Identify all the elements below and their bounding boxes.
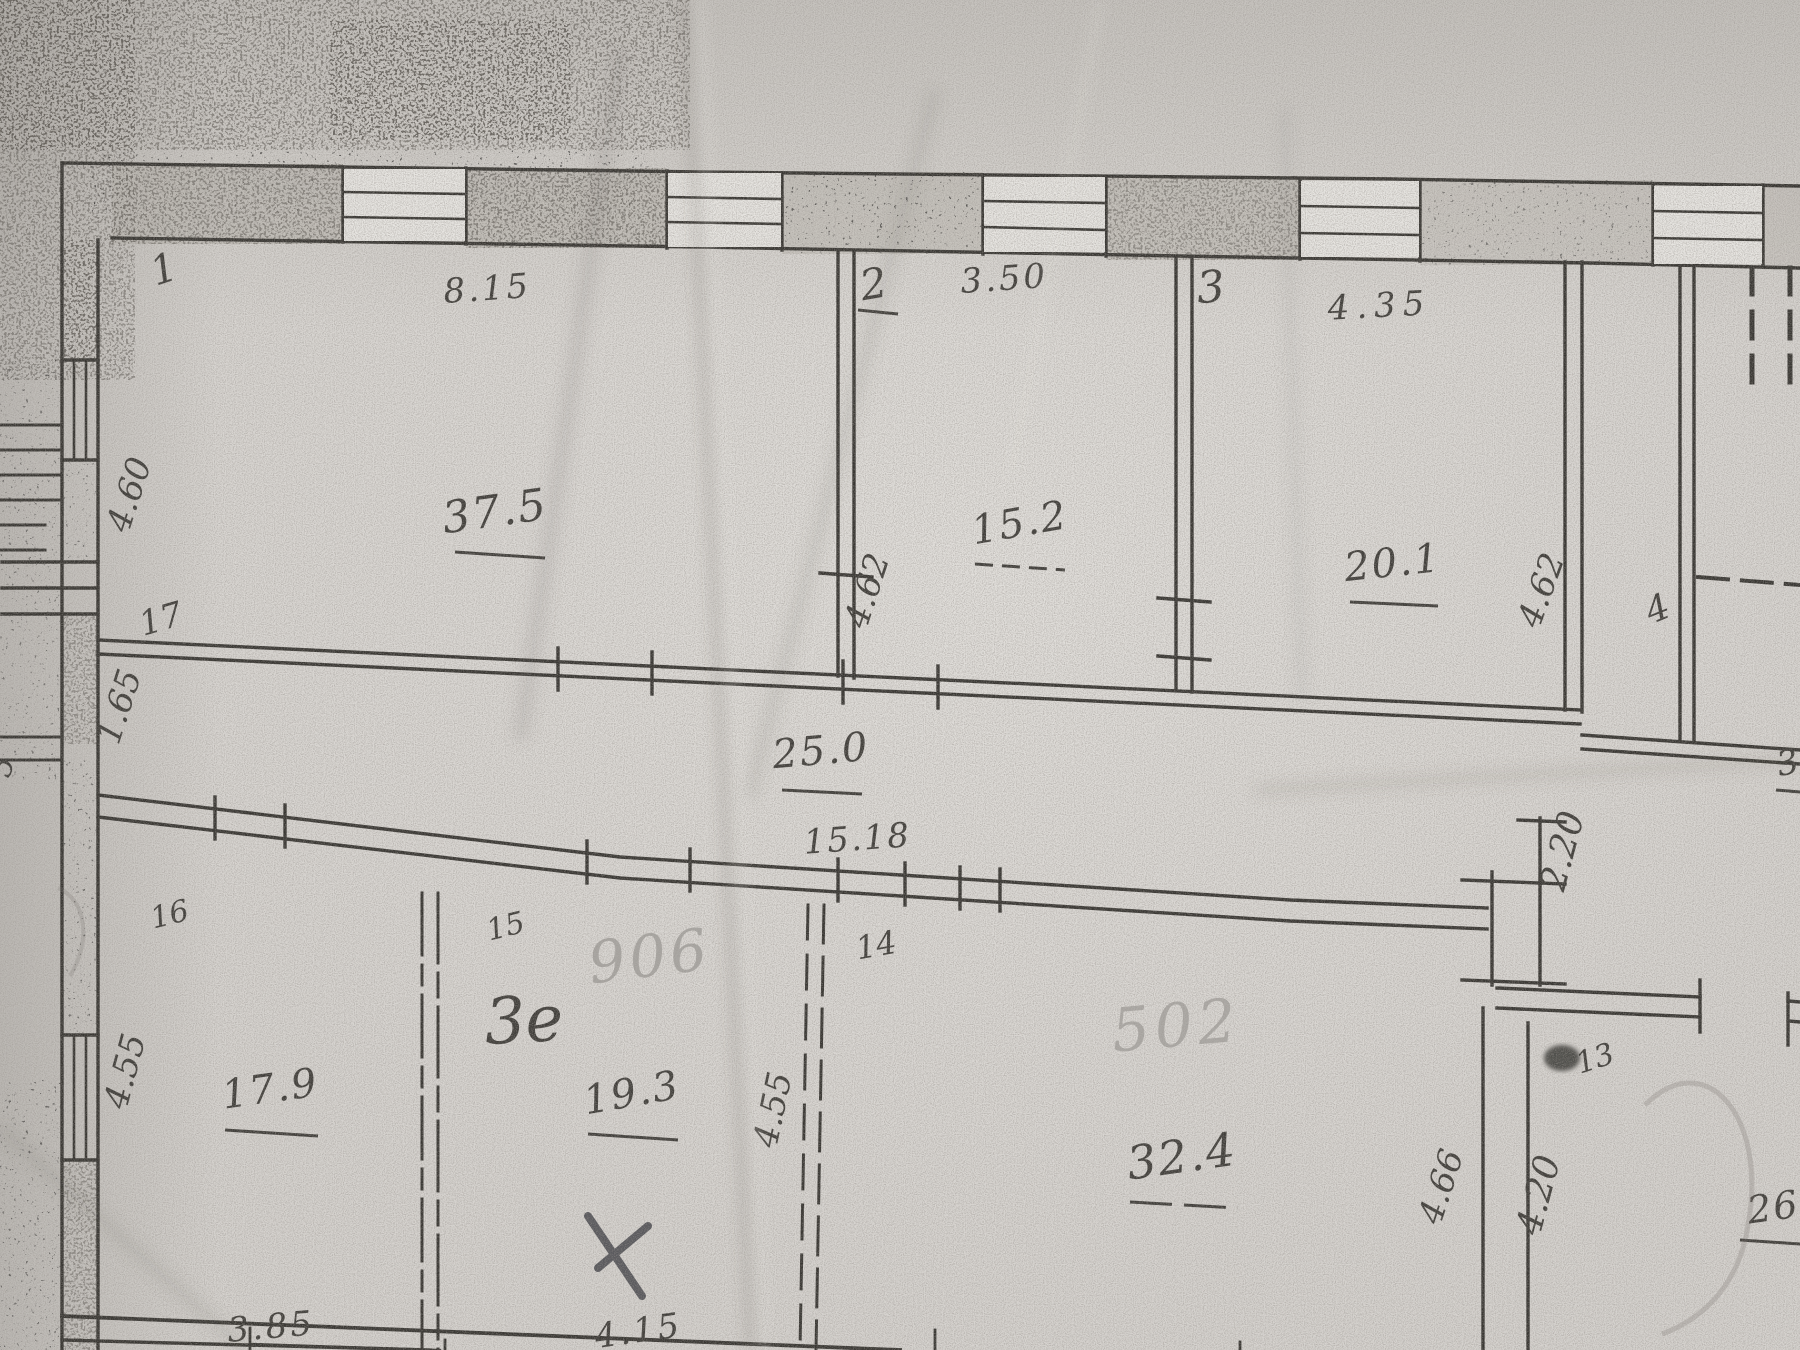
paper-grain: [0, 0, 1800, 1350]
floorplan-photo: 1 8.15 4.60 37.5 2 3.50 4.62 15.2 3 4.35…: [0, 0, 1800, 1350]
floorplan-svg: 1 8.15 4.60 37.5 2 3.50 4.62 15.2 3 4.35…: [0, 0, 1800, 1350]
